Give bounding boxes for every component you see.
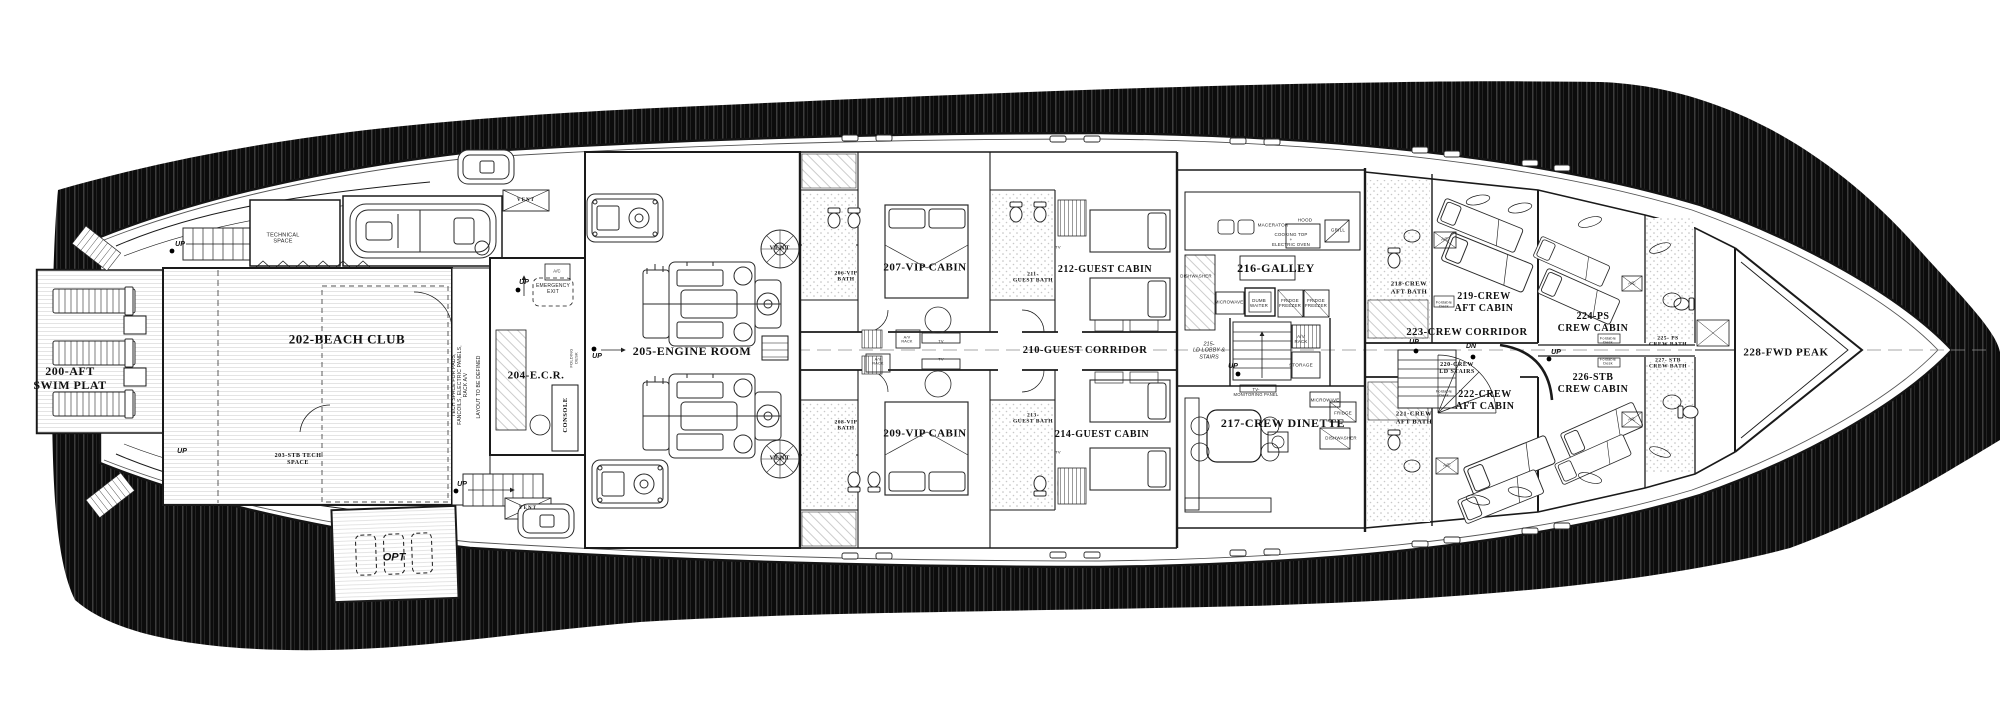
- label-cooking-top-oven: COOKING TOP + ELECTRIC OVEN: [1272, 232, 1310, 248]
- room-209-vip-cabin: 209-VIP CABIN: [883, 428, 966, 441]
- label-av-rack-lobby: A/V RACK: [1295, 334, 1308, 344]
- label-av-rack-vip-stb: A/V RACK: [872, 358, 883, 367]
- label-tv-vip-stb: TV: [938, 358, 944, 363]
- room-222-crew-aft-cabin: 222-CREW AFT CABIN: [1455, 389, 1514, 413]
- label-console: CONSOLE: [562, 397, 570, 432]
- room-208-vip-bath: 208-VIP BATH: [834, 420, 857, 433]
- label-up-ld-lobby: UP: [1228, 363, 1238, 371]
- label-dn-crew-corridor: DN: [1466, 343, 1476, 351]
- label-hood: HOOD: [1298, 217, 1313, 222]
- room-223-crew-corridor: 223-CREW CORRIDOR: [1406, 327, 1527, 339]
- label-layout-note: LAYOUT TO BE DEFINED: [477, 355, 483, 418]
- label-dishwasher-dinette: DISHWASHER: [1325, 435, 1357, 440]
- room-202-beach-club: 202-BEACH CLUB: [289, 331, 405, 346]
- label-dumb-waiter: DUMB WAITER: [1250, 298, 1268, 308]
- label-ac-crew-fwd-ps: A/C: [1628, 282, 1636, 287]
- label-macerator: MACERATOR: [1258, 222, 1289, 227]
- room-213-guest-bath: 213- GUEST BATH: [1013, 413, 1053, 426]
- label-ac-crew-aft-ps: A/C: [1441, 238, 1449, 243]
- room-221-crew-aft-bath: 221-CREW AFT BATH: [1396, 410, 1432, 425]
- room-215-ld-lobby-stairs: 215- LD LOBBY & STAIRS: [1193, 341, 1225, 360]
- label-dishwasher-galley: DISHWASHER: [1180, 273, 1212, 278]
- room-212-guest-cabin: 212-GUEST CABIN: [1058, 264, 1152, 276]
- room-220-crew-ld-stairs: 220-CREW LD STAIRS: [1439, 362, 1475, 376]
- label-fridge-dinette: FRIDGE: [1334, 410, 1352, 415]
- label-tech-space-note: TECH SPACE FOR PADS, FANCOILS, ELECTRIC …: [452, 345, 470, 425]
- label-microwave-galley: MICROWAVE: [1215, 299, 1244, 304]
- label-tv-monitoring-panel: TV- MONITORING PANEL: [1234, 388, 1279, 398]
- label-tv-guest-212: TV: [1055, 246, 1061, 251]
- label-grill: GRILL: [1331, 227, 1345, 232]
- label-vent-fan-top: VENT: [770, 245, 791, 252]
- room-226-stb-crew-cabin: 226-STB CREW CABIN: [1558, 372, 1629, 396]
- label-vent-box-bottom: VENT: [519, 506, 537, 512]
- room-204-ecr: 204-E.C.R.: [508, 370, 565, 383]
- room-211-guest-bath: 211- GUEST BATH: [1013, 272, 1053, 285]
- room-216-galley: 216-GALLEY: [1237, 261, 1315, 275]
- label-storage: STORAGE: [1289, 362, 1313, 367]
- label-ac-crew-aft-stb: A/C: [1443, 464, 1451, 469]
- label-vent-fan-bottom: VENT: [770, 455, 791, 462]
- label-microwave-dinette: MICROWAVE: [1311, 397, 1340, 402]
- room-214-guest-cabin: 214-GUEST CABIN: [1055, 429, 1149, 441]
- label-up-aft-stb: UP: [177, 448, 187, 456]
- room-224-ps-crew-cabin: 224-PS CREW CABIN: [1558, 311, 1629, 335]
- label-tv-vip-ps: TV: [938, 340, 944, 345]
- room-217-crew-dinette: 217-CREW DINETTE: [1221, 416, 1345, 430]
- label-emergency-exit: EMERGENCY EXIT: [536, 284, 570, 296]
- label-foldable-desk-222: Foldable Desk: [1436, 390, 1452, 399]
- room-200-aft-swim-platform: 200-AFT SWIM PLAT: [33, 364, 106, 392]
- room-227-stb-crew-bath: 227- STB CREW BATH: [1649, 358, 1687, 371]
- room-203-stb-tech-space: 203-STB TECH SPACE: [275, 453, 322, 467]
- label-up-crew-corridor: UP: [1409, 339, 1419, 347]
- label-foldable-desk-219: Foldable Desk: [1436, 301, 1452, 310]
- room-205-engine-room: 205-ENGINE ROOM: [633, 344, 752, 358]
- label-ac-ecr: A/C: [553, 270, 561, 275]
- room-218-crew-aft-bath: 218-CREW AFT BATH: [1391, 280, 1427, 295]
- room-219-crew-aft-cabin: 219-CREW AFT CABIN: [1454, 291, 1513, 315]
- room-228-fwd-peak: 228-FWD PEAK: [1743, 347, 1828, 360]
- room-225-ps-crew-bath: 225- PS CREW BATH: [1649, 336, 1687, 349]
- label-foldable-desk-224: Foldable Desk: [1600, 337, 1616, 346]
- label-up-engine-room: UP: [592, 353, 602, 361]
- labels-layer: 200-AFT SWIM PLAT202-BEACH CLUB203-STB T…: [0, 0, 2000, 704]
- deck-plan-canvas: 200-AFT SWIM PLAT202-BEACH CLUB203-STB T…: [0, 0, 2000, 704]
- room-206-vip-bath: 206-VIP BATH: [834, 271, 857, 284]
- label-up-beach-exit: UP: [457, 481, 467, 489]
- label-opt: OPT: [383, 552, 406, 565]
- label-fridge-freezer-2: FRIDGE FREEZER: [1305, 298, 1327, 308]
- label-foldable-desk-226: Foldable Desk: [1600, 358, 1616, 367]
- label-vent-box-top: VENT: [517, 198, 535, 204]
- label-folding-desk: FOLDING DESK: [569, 348, 578, 367]
- label-fridge-freezer-1: FRIDGE FREEZER: [1279, 298, 1301, 308]
- label-up-ecr: UP: [519, 279, 529, 287]
- label-up-aft-port: UP: [175, 241, 185, 249]
- label-ac-crew-fwd-stb: A/C: [1628, 418, 1636, 423]
- label-av-rack-vip-ps: A/V RACK: [901, 336, 912, 345]
- room-210-guest-corridor: 210-GUEST CORRIDOR: [1023, 345, 1148, 357]
- room-technical-space: TECHNICAL SPACE: [267, 233, 300, 246]
- room-207-vip-cabin: 207-VIP CABIN: [883, 262, 966, 275]
- label-tv-guest-214: TV: [1055, 451, 1061, 456]
- label-up-crew-fwd: UP: [1551, 349, 1561, 357]
